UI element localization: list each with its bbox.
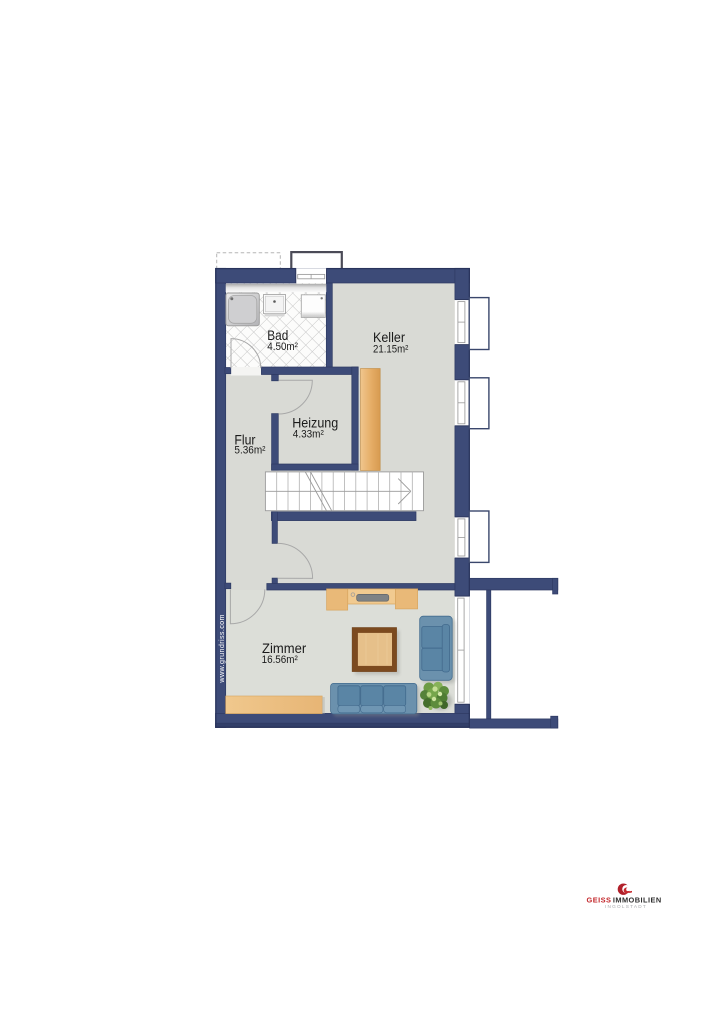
svg-text:4.50m²: 4.50m²: [267, 341, 298, 353]
svg-text:4.33m²: 4.33m²: [293, 428, 324, 440]
svg-text:Keller: Keller: [373, 329, 405, 345]
svg-text:21.15m²: 21.15m²: [373, 344, 409, 356]
svg-text:16.56m²: 16.56m²: [262, 654, 299, 666]
svg-text:5.36m²: 5.36m²: [234, 444, 265, 456]
svg-text:INGOLSTADT: INGOLSTADT: [605, 904, 647, 909]
svg-text:www.grundriss.com: www.grundriss.com: [217, 614, 226, 683]
